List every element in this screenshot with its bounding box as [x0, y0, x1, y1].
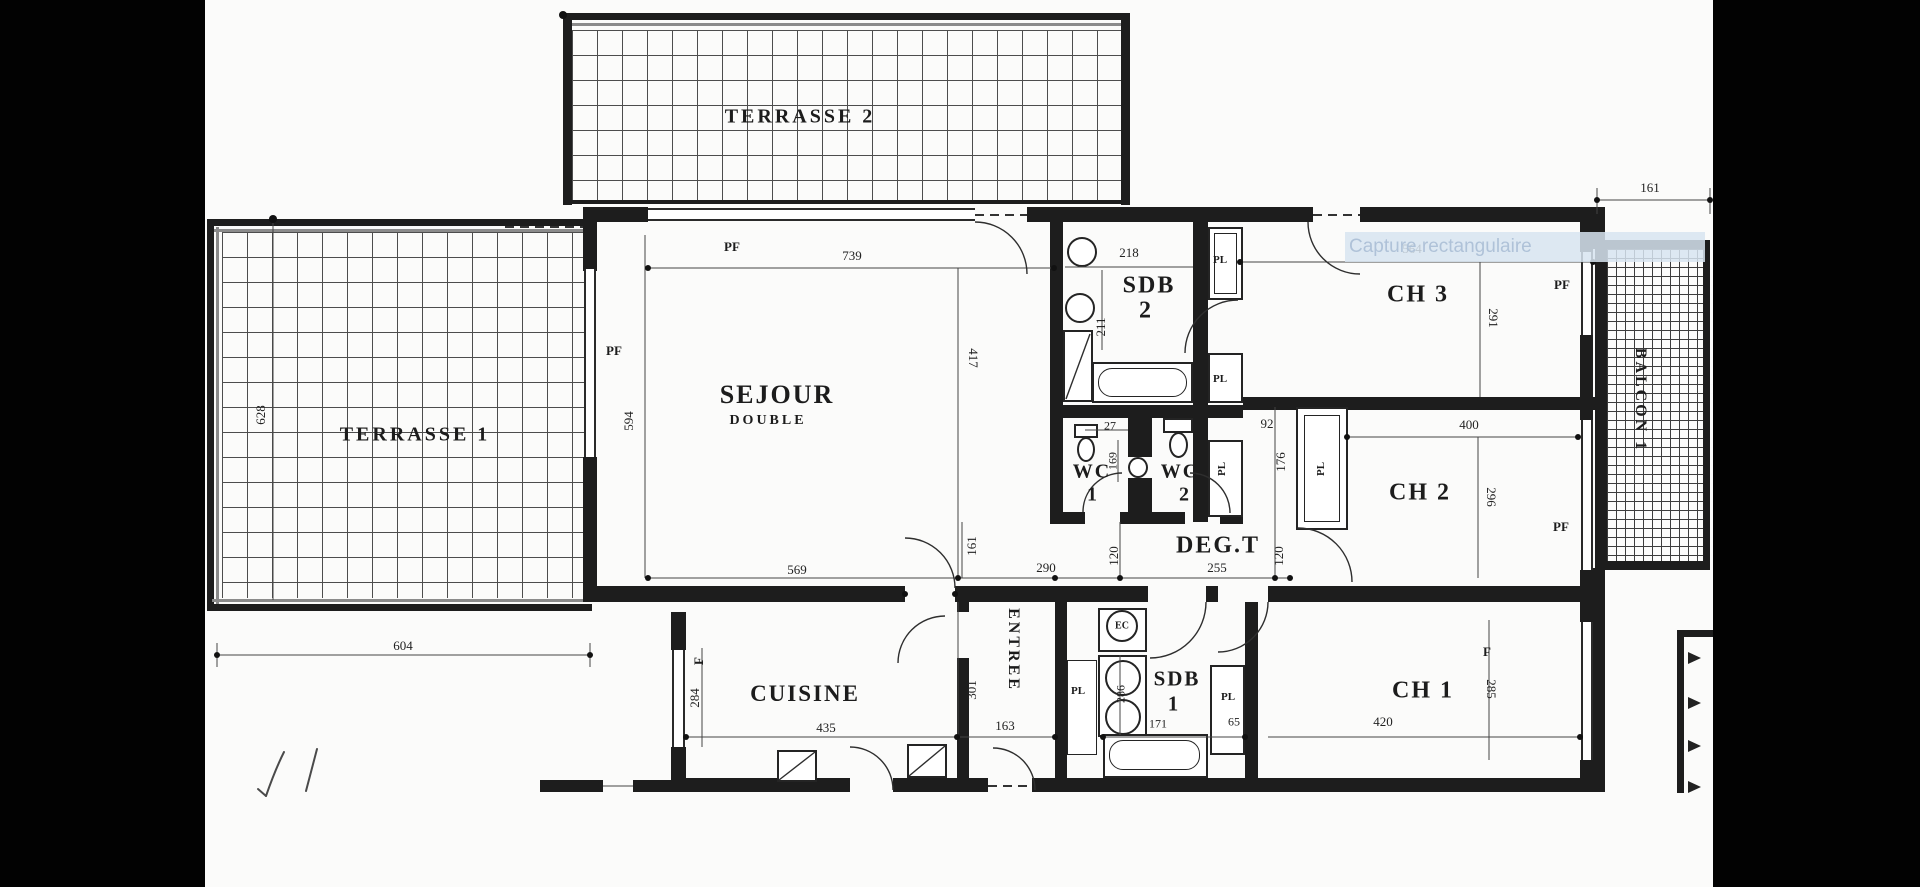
dim-sdb2-width: 218	[1119, 245, 1139, 261]
dim-ch2-closet: 176	[1273, 452, 1289, 472]
window-ch1-f	[1581, 622, 1593, 760]
wall-mid-4	[1268, 586, 1600, 602]
dim-ch2-width: 400	[1459, 417, 1479, 433]
wall-ext-left-1	[540, 780, 603, 792]
terrasse1-rail-bottom	[207, 604, 592, 611]
dim-sejour-right: 417	[965, 348, 981, 368]
dim-hall-door: 161	[964, 536, 980, 556]
dim-ch1-width: 420	[1373, 714, 1393, 730]
balcon-wall-left	[1595, 240, 1607, 570]
wall-top-2	[1027, 207, 1313, 222]
room-label-sdb1: SDB	[1154, 667, 1201, 692]
closet-tag-pl-entree: PL	[1071, 685, 1085, 697]
window-cuisine-f	[672, 650, 685, 747]
room-label-sdb2: SDB	[1123, 273, 1176, 300]
dim-ch2-height: 296	[1483, 487, 1499, 507]
wall-sejour-left-top	[583, 207, 597, 271]
terrasse1-rail-top	[207, 219, 592, 226]
duct-box-cuisine	[777, 750, 817, 782]
dim-entree-height: 301	[964, 680, 980, 700]
room-number-sdb2: 2	[1139, 298, 1153, 325]
room-label-cuisine: CUISINE	[750, 681, 860, 707]
wall-sdb2-wc-divider	[1050, 405, 1243, 418]
shower-icon-sdb2	[1063, 330, 1093, 402]
dim-cuisine-width: 435	[816, 720, 836, 736]
closet-pl-entree	[1067, 660, 1097, 755]
balcon-tile-grid	[1607, 249, 1703, 561]
sink-icon-sdb2-2	[1065, 293, 1095, 323]
wall-mid-2	[955, 586, 1148, 602]
balcon-rail-right	[1703, 243, 1710, 568]
wall-right-2	[1580, 335, 1593, 420]
wall-sejour-right-bottom	[1050, 418, 1063, 522]
duct-box-entree	[907, 744, 947, 778]
room-label-ch1: CH 1	[1392, 678, 1454, 705]
closet-tag-pl-ch2: PL	[1315, 462, 1327, 476]
stair-arrow-icons	[1688, 652, 1701, 793]
terrasse1-tile-grid	[222, 232, 585, 598]
dim-sdb2-height: 211	[1093, 317, 1109, 336]
closet-tag-pl-sdb1: PL	[1221, 691, 1235, 703]
wall-bottom-1	[672, 778, 850, 792]
closet-pl-sdb1	[1210, 665, 1245, 755]
sink-icon-sdb2-1	[1067, 237, 1097, 267]
room-number-wc1: 1	[1087, 484, 1099, 507]
dim-sejour-top: 739	[842, 248, 862, 264]
window-tag-f-cuisine: F	[691, 657, 707, 665]
terrasse1-rail-bottom-inner	[212, 599, 590, 602]
dim-degt-right: 120	[1271, 546, 1287, 566]
dim-terrasse1-width: 604	[393, 638, 413, 654]
wall-neighbor-vert	[1677, 630, 1684, 793]
window-ch2-pf	[1581, 420, 1593, 570]
wall-bottom-2	[893, 778, 988, 792]
washer-icon-2	[1105, 699, 1141, 735]
wall-wc-bottom-1	[1050, 512, 1085, 524]
room-label-ch2: CH 2	[1389, 480, 1451, 507]
terrasse2-rail-left	[563, 13, 572, 205]
closet-tag-pl-sdb2-bottom: PL	[1213, 373, 1227, 385]
room-label-entree: ENTREE	[1004, 608, 1022, 692]
room-number-wc2: 2	[1179, 484, 1191, 507]
wall-mid-1	[583, 586, 905, 602]
wall-mid-3	[1206, 586, 1218, 602]
window-sejour-left	[584, 269, 596, 459]
dim-sdb1-closet: 65	[1228, 715, 1240, 730]
terrasse1-rail-left	[207, 219, 214, 611]
toilet-icon-wc1-bowl	[1077, 437, 1095, 462]
wall-entree-left-stub	[957, 602, 969, 612]
wall-bottom-3	[1032, 778, 1600, 792]
wall-ext-left-2	[633, 780, 672, 792]
wall-sdb1-ch1	[1245, 602, 1258, 792]
window-tag-pf-ch3: PF	[1554, 277, 1570, 293]
balcon-rail-bottom	[1595, 561, 1710, 570]
closet-tag-pl-wc2: PL	[1216, 462, 1228, 476]
bathtub-sdb1-inner	[1109, 740, 1200, 770]
dim-hall-width: 290	[1036, 560, 1056, 576]
terrasse2-rail-top	[563, 13, 1130, 20]
window-tag-pf-sejour-top: PF	[724, 239, 740, 255]
toilet-icon-wc2-tank	[1163, 418, 1193, 433]
room-label-balcon1: BALCON 1	[1631, 348, 1649, 452]
handwritten-mark	[258, 749, 317, 796]
window-sejour-top	[648, 208, 975, 221]
wall-wc-bottom-2	[1120, 512, 1185, 524]
wall-top-1	[592, 207, 648, 222]
room-label-terrasse1: TERRASSE 1	[340, 424, 491, 447]
dim-ch1-window: 285	[1483, 679, 1499, 699]
room-number-sdb1: 1	[1168, 692, 1181, 717]
dim-cuisine-window: 284	[687, 688, 703, 708]
dim-wc1-width: 169	[1106, 452, 1121, 470]
wall-cuisine-left-top	[671, 612, 686, 650]
terrasse2-rail-bottom	[563, 200, 1130, 204]
dim-balcon-width: 161	[1640, 180, 1660, 196]
closet-pl-wc2	[1208, 440, 1243, 517]
window-tag-pf-sejour-left: PF	[606, 343, 622, 359]
letterbox-left	[0, 0, 205, 887]
wall-entree-right	[1055, 602, 1067, 792]
room-label-wc2: WC	[1161, 461, 1199, 484]
dim-wc1-nib: 27	[1104, 419, 1116, 434]
toilet-icon-wc1-tank	[1074, 424, 1098, 438]
wall-sejour-left-bottom	[583, 457, 597, 598]
window-tag-pf-ch2: PF	[1553, 519, 1569, 535]
dim-sdb1-width: 171	[1149, 717, 1167, 732]
terrasse1-rail-left-inner	[216, 227, 219, 607]
watermark-capture: Capture rectangulaire	[1345, 232, 1705, 262]
room-label-degt: DEG.T	[1176, 533, 1260, 560]
wall-wc-mid-bottom	[1128, 478, 1152, 514]
wall-wc-mid-top	[1128, 418, 1152, 457]
room-label-ch3: CH 3	[1387, 282, 1449, 309]
toilet-icon-wc2-bowl	[1169, 432, 1188, 458]
letterbox-right	[1713, 0, 1920, 887]
wall-top-3	[1360, 207, 1597, 222]
window-tag-f-ch1: F	[1483, 644, 1491, 660]
sink-icon-wc	[1128, 457, 1148, 478]
dim-ch2-nib: 92	[1261, 416, 1274, 432]
wall-sejour-right-top	[1050, 222, 1063, 405]
dim-sejour-bottom: 569	[787, 562, 807, 578]
room-label-sejour-sub: DOUBLE	[729, 413, 806, 429]
dim-terrasse1-height: 628	[253, 405, 269, 425]
dim-degt-width: 255	[1207, 560, 1227, 576]
dim-entree-width: 163	[995, 718, 1015, 734]
wall-neighbor-horiz	[1677, 630, 1713, 637]
dim-ch3-height: 291	[1485, 308, 1501, 328]
dim-sejour-left: 594	[621, 411, 637, 431]
bathtub-sdb2-inner	[1098, 368, 1187, 397]
water-heater-tag-ec: EC	[1115, 621, 1129, 632]
closet-tag-pl-sdb2-top: PL	[1213, 254, 1227, 266]
room-label-terrasse2: TERRASSE 2	[725, 106, 876, 129]
terrasse2-rail-right	[1121, 13, 1130, 205]
wall-entree-left	[957, 658, 969, 792]
terrasse2-rail-top-inner	[563, 23, 1130, 26]
room-label-sejour: SEJOUR	[720, 380, 835, 410]
floor-plan-viewer: TERRASSE 2 TERRASSE 1 BALCON 1	[0, 0, 1920, 887]
dim-degt-left: 120	[1106, 546, 1122, 566]
window-ch3-pf	[1581, 252, 1593, 335]
dim-sdb1-left: 286	[1114, 685, 1129, 703]
